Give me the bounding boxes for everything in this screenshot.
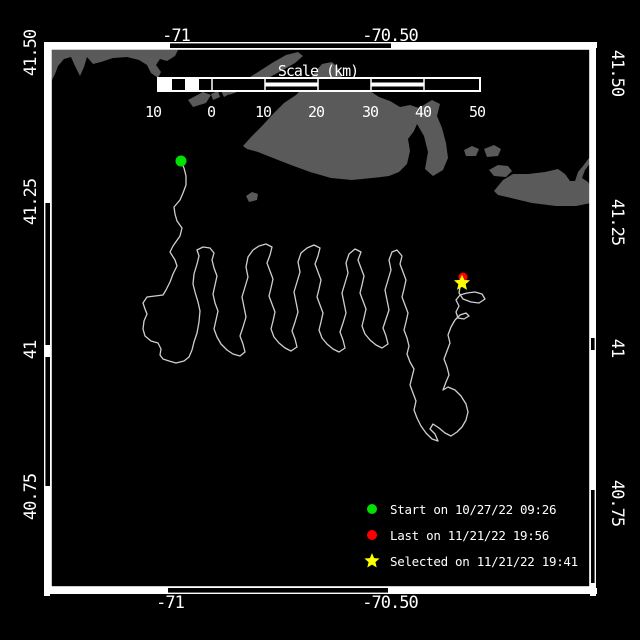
map-plot: -71 -70.50 -71 -70.50 41.50 41.25 41 40.…	[0, 0, 640, 640]
axis-label-left-lat-1: 41.50	[21, 29, 41, 76]
axis-label-bottom-lon-2: -70.50	[362, 593, 418, 613]
scale-label-20: 20	[308, 103, 325, 121]
scale-bar-stripe-segment	[371, 83, 424, 87]
start-marker[interactable]	[176, 156, 187, 167]
zebra-segment-bottom	[45, 588, 168, 594]
last-dot-icon	[362, 526, 382, 544]
axis-label-top-lon-2: -70.50	[362, 26, 418, 46]
scale-bar-segment	[185, 79, 199, 90]
scale-label-30: 30	[362, 103, 379, 121]
landmass	[489, 165, 512, 177]
zebra-segment-top	[391, 42, 597, 48]
zebra-segment-top	[45, 42, 170, 48]
axis-label-bottom-lon-1: -71	[156, 593, 184, 613]
axis-label-right-lat-2: 41.25	[607, 199, 627, 245]
landmass	[246, 192, 258, 202]
scale-label-0: 0	[207, 103, 216, 121]
axis-label-right-lat-4: 40.75	[607, 480, 627, 526]
zebra-segment-left	[44, 486, 50, 596]
scale-label-40: 40	[415, 103, 432, 121]
marker-group	[176, 156, 471, 290]
axis-label-left-lat-2: 41.25	[21, 179, 41, 225]
zebra-segment-left	[44, 42, 50, 203]
axis-label-left-lat-4: 40.75	[21, 474, 41, 520]
legend: Start on 10/27/22 09:26 Last on 11/21/22…	[362, 496, 578, 574]
landmass	[484, 145, 501, 157]
legend-selected-label: Selected on 11/21/22 19:41	[390, 554, 578, 569]
selected-star-icon	[362, 552, 382, 570]
legend-row-selected[interactable]: Selected on 11/21/22 19:41	[362, 548, 578, 574]
axis-label-left-lat-3: 41	[21, 340, 41, 359]
landmass	[211, 91, 220, 100]
drifter-track[interactable]	[143, 161, 485, 441]
scale-label-10: 10	[255, 103, 272, 121]
axis-label-right-lat-1: 41.50	[607, 50, 627, 97]
legend-last-label: Last on 11/21/22 19:56	[390, 528, 549, 543]
scale-bar-title: Scale (km)	[278, 62, 358, 80]
scale-label-50: 50	[469, 103, 486, 121]
axis-label-right-lat-3: 41	[607, 339, 627, 358]
legend-row-start[interactable]: Start on 10/27/22 09:26	[362, 496, 578, 522]
scale-label-10l: 10	[145, 103, 162, 121]
legend-start-label: Start on 10/27/22 09:26	[390, 502, 556, 517]
landmass	[464, 146, 479, 156]
start-dot-icon	[362, 500, 382, 518]
track-group	[143, 161, 485, 441]
axis-label-top-lon-1: -71	[162, 26, 190, 46]
scale-bar-segment	[159, 79, 172, 90]
landmass	[494, 156, 591, 206]
legend-row-last[interactable]: Last on 11/21/22 19:56	[362, 522, 578, 548]
zebra-segment-bottom	[388, 588, 597, 594]
landmass	[52, 50, 178, 80]
selected-marker[interactable]	[454, 275, 470, 290]
zebra-segment-left	[44, 345, 50, 357]
scale-bar-stripe-segment	[265, 83, 318, 87]
